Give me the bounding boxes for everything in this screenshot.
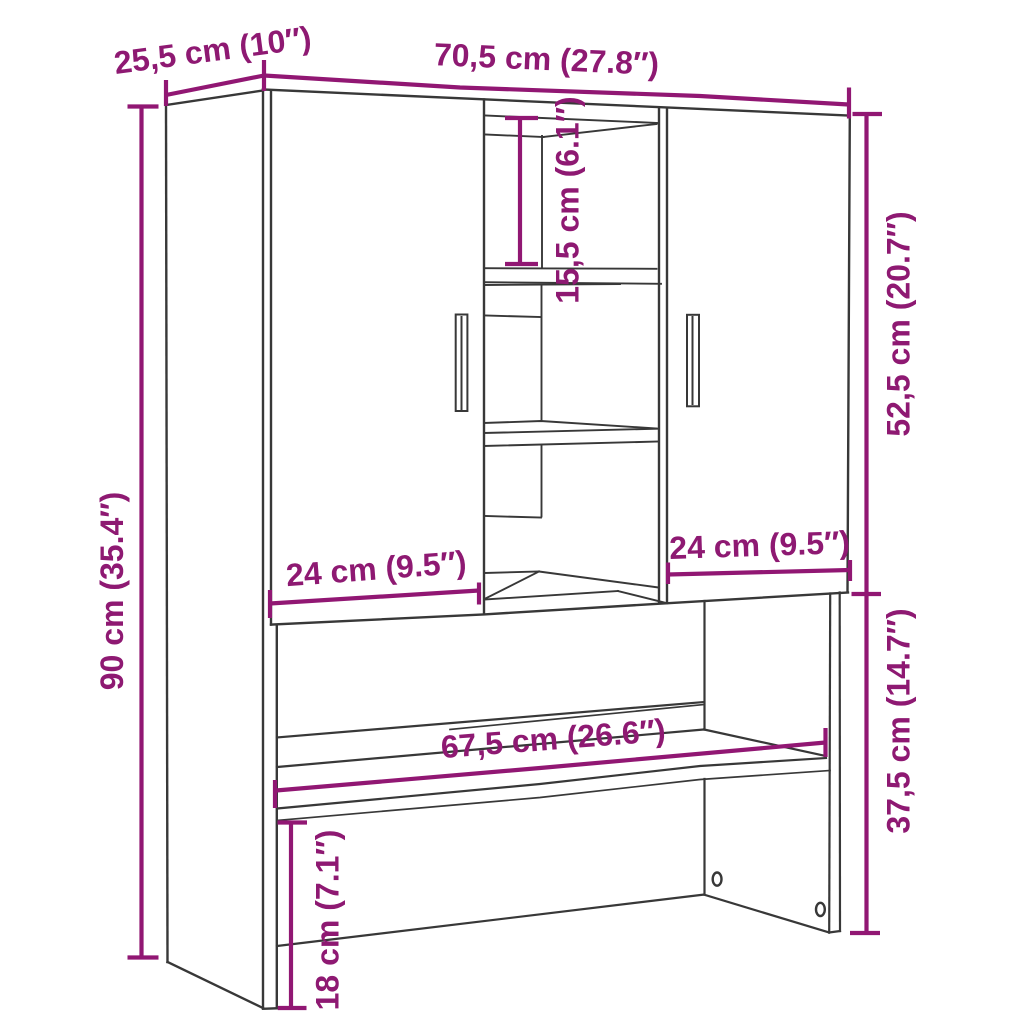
svg-text:52,5 cm (20.7″): 52,5 cm (20.7″) bbox=[881, 211, 917, 436]
svg-text:37,5 cm (14.7″): 37,5 cm (14.7″) bbox=[881, 608, 917, 833]
svg-text:15,5 cm (6.1″): 15,5 cm (6.1″) bbox=[550, 96, 586, 303]
svg-text:90 cm (35.4″): 90 cm (35.4″) bbox=[94, 492, 130, 691]
svg-text:24 cm (9.5″): 24 cm (9.5″) bbox=[669, 524, 851, 566]
svg-text:18 cm (7.1″): 18 cm (7.1″) bbox=[310, 830, 346, 1011]
